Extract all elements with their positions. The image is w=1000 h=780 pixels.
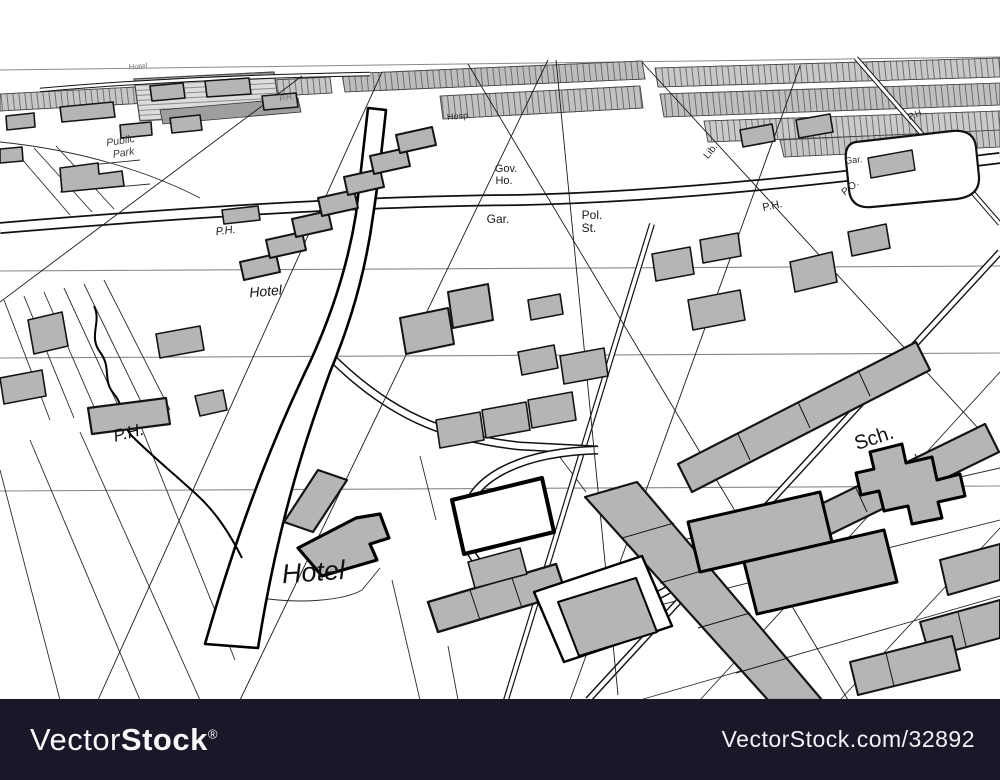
map-label: Hosp.	[447, 110, 471, 122]
map-label: P.H.	[761, 198, 783, 214]
stock-image-page: HotelP.H.PublicParkHosp.Gov.Ho.Gar.Pol.S…	[0, 0, 1000, 780]
map-canvas: HotelP.H.PublicParkHosp.Gov.Ho.Gar.Pol.S…	[0, 0, 1000, 780]
logo-light-text: Vector	[30, 722, 121, 757]
map-label: St.	[582, 221, 597, 235]
map-label: Gar.	[845, 154, 863, 166]
map-label: Hotel	[249, 282, 284, 301]
map-label: Ho.	[495, 175, 512, 187]
map-label: Gov.	[495, 163, 517, 175]
map-label: Hotel	[128, 61, 147, 71]
top-terraces	[0, 58, 1000, 157]
registered-mark: ®	[208, 726, 218, 741]
logo-bold-text: Stock	[121, 722, 208, 757]
map-label: Pol.	[582, 208, 603, 222]
map-label: Gar.	[487, 212, 510, 226]
map-label: P.H.	[215, 224, 236, 238]
map-label: Hotel	[281, 555, 347, 589]
vectorstock-logo: VectorStock®	[30, 722, 218, 758]
watermark-url: VectorStock.com/32892	[722, 726, 975, 753]
map-label: Park	[112, 145, 136, 160]
watermark-bar: VectorStock® VectorStock.com/32892	[0, 699, 1000, 780]
